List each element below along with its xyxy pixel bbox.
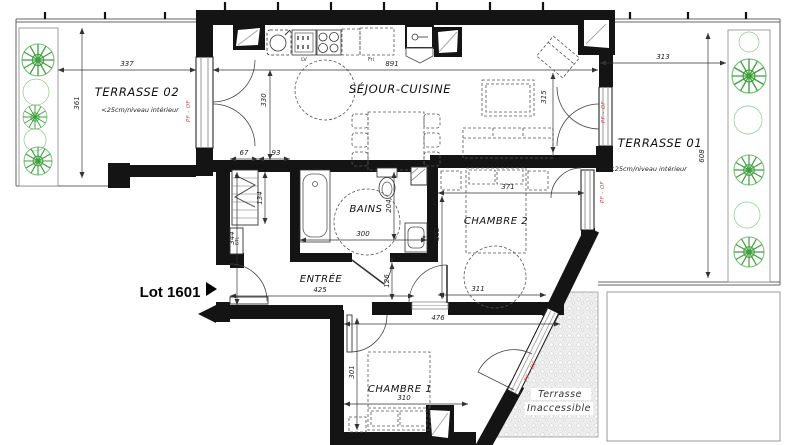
plant-icon <box>24 147 52 175</box>
turning-circle <box>295 60 355 120</box>
lower-court-outline <box>607 292 780 441</box>
terrasse-inaccessible-label-2: Inaccessible <box>527 403 591 414</box>
terrasse02-note: <25cm/niveau intérieur <box>101 106 180 114</box>
window-type-label: PF - OF <box>186 99 192 122</box>
window-box-kitchen <box>233 25 265 50</box>
chambre2-label: CHAMBRE 2 <box>464 216 528 227</box>
svg-text:371: 371 <box>501 183 514 191</box>
floor-plan: Terrasse Inaccessible <box>0 0 800 445</box>
entree-label: ENTRÉE <box>300 272 343 285</box>
dim-chambre2-width: 371 <box>438 183 584 193</box>
dishwasher-label: LV <box>301 57 307 63</box>
svg-text:425: 425 <box>313 286 327 294</box>
dishwasher: LV <box>292 30 316 63</box>
dim-sejour-height: 330 <box>260 70 270 160</box>
svg-text:301: 301 <box>348 365 356 378</box>
entrance-door <box>230 264 268 304</box>
svg-text:330: 330 <box>260 93 268 107</box>
chambre1-door <box>347 315 387 352</box>
fridge-label: Fri <box>368 57 374 63</box>
svg-text:310: 310 <box>397 394 411 402</box>
plant-icon <box>22 44 54 76</box>
svg-text:337: 337 <box>120 60 134 68</box>
svg-text:608: 608 <box>698 149 706 163</box>
lot-label-group: Lot 1601 <box>140 282 217 301</box>
dim-terrasse01-width: 313 <box>600 53 726 63</box>
nightstand <box>528 171 548 190</box>
planter-left <box>19 28 58 186</box>
kitchen-counter-fridge: Fri <box>342 28 394 63</box>
plant-icon <box>23 105 47 129</box>
plant-icon <box>734 155 764 185</box>
svg-text:315: 315 <box>540 90 548 104</box>
nightstand <box>441 171 461 190</box>
armchair <box>537 36 580 78</box>
sejour-label: SÉJOUR-CUISINE <box>349 81 451 96</box>
radiator <box>412 302 448 309</box>
plant-icon <box>734 237 764 267</box>
svg-text:344: 344 <box>228 231 236 244</box>
svg-text:476: 476 <box>431 314 445 322</box>
entree-closet <box>232 170 258 225</box>
dim-terrasse02-height: 361 <box>73 28 82 178</box>
dim-closet-depth: 67 <box>230 149 258 159</box>
window-box-sejour <box>434 27 462 57</box>
lot-label: Lot 1601 <box>140 284 201 301</box>
cooktop <box>317 30 341 55</box>
svg-text:313: 313 <box>656 53 669 61</box>
turning-circle <box>334 189 400 255</box>
window-type-label: PF - OF <box>600 180 606 203</box>
coffee-table <box>482 80 534 116</box>
chambre1-label: CHAMBRE 1 <box>368 384 432 395</box>
svg-text:134: 134 <box>256 191 264 204</box>
svg-text:93: 93 <box>272 149 281 157</box>
svg-text:126: 126 <box>383 274 391 288</box>
kitchen-sink <box>267 30 291 55</box>
svg-text:300: 300 <box>356 230 370 238</box>
lot-arrow-icon <box>206 282 217 296</box>
chambre2-door <box>409 265 447 303</box>
window-terrasse02-pf <box>196 57 255 148</box>
svg-text:67: 67 <box>240 149 249 157</box>
floor-plan-canvas: Terrasse Inaccessible <box>0 0 800 445</box>
window-box-corner <box>584 20 609 48</box>
terrasse02-label: TERRASSE 02 <box>95 85 179 99</box>
dim-chambre1-width: 310 <box>344 394 468 404</box>
plant-icon <box>732 59 766 93</box>
dim-chambre1-top: 476 <box>344 314 560 324</box>
terrasse-inaccessible-label-1: Terrasse <box>538 389 582 400</box>
dim-closet-gap: 93 <box>258 149 290 159</box>
svg-text:361: 361 <box>73 96 81 109</box>
bains-label: BAINS <box>350 204 383 215</box>
dim-chambre2-bottom: 311 <box>438 285 546 295</box>
dim-sejour-east: 315 <box>540 73 553 153</box>
svg-text:204: 204 <box>385 199 393 212</box>
turning-circle <box>464 246 526 308</box>
sofa <box>463 128 553 158</box>
dim-hall-width: 126 <box>383 263 392 300</box>
dim-terrasse02-width: 337 <box>58 60 196 70</box>
svg-text:352: 352 <box>433 227 441 241</box>
nightstand <box>349 417 366 432</box>
dim-sejour-width: 891 <box>213 60 598 70</box>
chambre2-furniture <box>441 168 548 308</box>
dim-terrasse01-height: 608 <box>698 33 708 278</box>
window-chambre2-east-pf <box>551 168 594 230</box>
bed <box>466 168 526 253</box>
washbasin <box>405 223 427 252</box>
bathtub <box>300 170 330 242</box>
duct-bains <box>411 167 427 185</box>
duct-kitchen <box>406 26 433 63</box>
terrasse01-label: TERRASSE 01 <box>618 136 702 150</box>
svg-text:311: 311 <box>471 285 484 293</box>
planter-right <box>728 30 770 282</box>
window-type-label: PF - OF <box>601 100 607 123</box>
svg-text:891: 891 <box>385 60 398 68</box>
terrasse01-note: <25cm/niveau intérieur <box>609 165 688 173</box>
